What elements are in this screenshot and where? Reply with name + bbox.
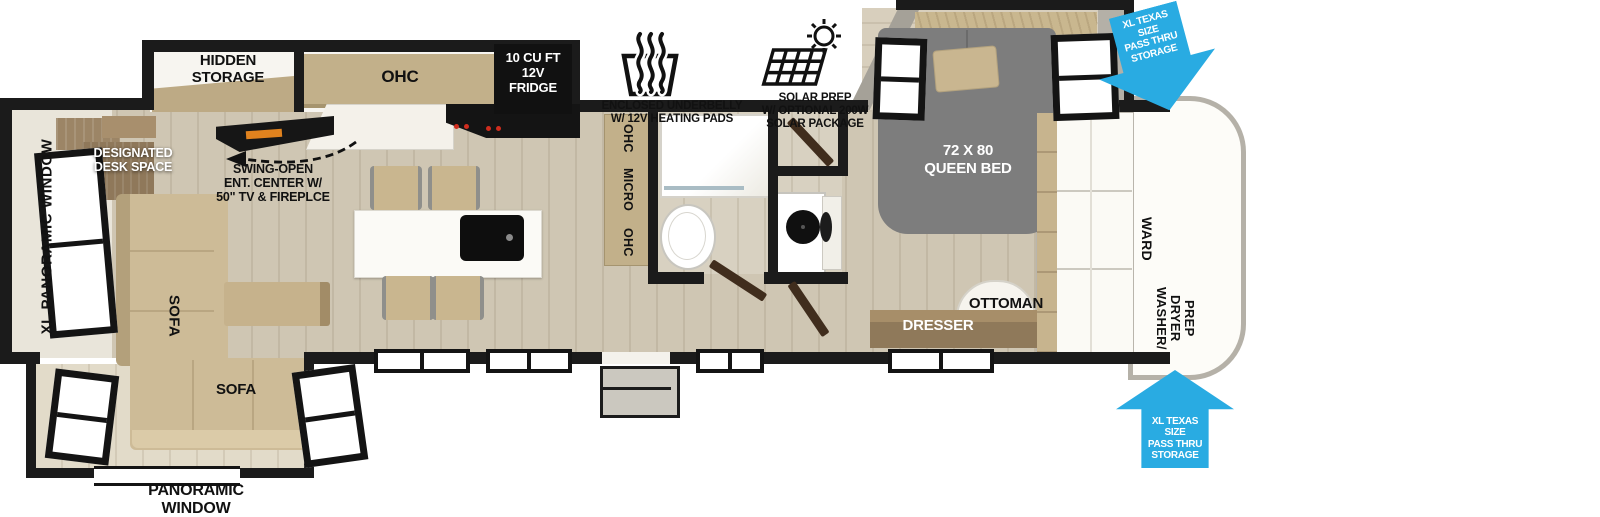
window — [374, 349, 470, 373]
washer-door-hub — [801, 225, 805, 229]
xl-panoramic-window-label: XL PANORAMIC WINDOW — [24, 116, 70, 356]
wall — [294, 46, 304, 112]
panoramic-window-label: PANORAMIC WINDOW — [118, 482, 274, 517]
washer-side-door — [820, 212, 832, 242]
slideout-side-window — [292, 364, 369, 468]
hidden-storage-label: HIDDEN STORAGE — [170, 52, 286, 86]
fridge-label: 10 CU FT 12V FRIDGE — [494, 50, 572, 95]
window-divider — [527, 353, 531, 369]
ohc-label: OHC — [304, 68, 496, 86]
pillow — [932, 45, 999, 92]
toilet-seat-line — [668, 212, 706, 260]
wall — [896, 0, 1134, 10]
ent-center-label: SWING-OPEN ENT. CENTER W/ 50" TV & FIREP… — [202, 162, 344, 204]
window — [888, 349, 994, 373]
entry-door-opening — [602, 352, 670, 364]
bar-stool — [432, 276, 484, 320]
window-divider — [939, 353, 943, 369]
micro-label: MICRO — [604, 158, 652, 222]
wall — [768, 110, 778, 280]
sofa-horizontal-label: SOFA — [196, 382, 276, 398]
wardrobe-divider — [1057, 190, 1132, 192]
burner-knob — [486, 126, 491, 131]
bar-stool — [370, 166, 422, 210]
queen-bed-label: 72 X 80 QUEEN BED — [898, 142, 1038, 178]
window-divider — [420, 353, 424, 369]
bar-stool — [428, 166, 480, 210]
heating-pads-icon — [608, 26, 692, 100]
kitchen-sink — [460, 215, 524, 261]
sofa-seam — [192, 360, 194, 430]
pass-thru-arrow-bottom: XL TEXAS SIZE PASS THRU STORAGE — [1116, 370, 1234, 468]
wall — [0, 98, 152, 110]
burner-knob — [496, 126, 501, 131]
pass-thru-bottom-label: XL TEXAS SIZE PASS THRU STORAGE — [1141, 409, 1208, 468]
shower-glass-door — [664, 186, 744, 190]
door-jamb — [670, 352, 678, 364]
floorplan-canvas: HIDDEN STORAGE OHC 10 CU FT 12V FRIDGE S… — [0, 0, 1600, 517]
wall — [0, 98, 12, 364]
dresser-label: DRESSER — [882, 318, 994, 334]
bar-stool — [382, 276, 434, 320]
window — [486, 349, 572, 373]
wardrobe-door-seam — [1090, 113, 1092, 353]
faucet-dot — [506, 234, 513, 241]
micro-ohc-bottom-label: OHC — [604, 222, 652, 262]
wall — [26, 358, 36, 478]
wall — [648, 272, 704, 284]
sofa-front-band — [132, 430, 310, 448]
sofa-vertical-label: SOFA — [152, 268, 196, 364]
window-divider — [728, 353, 732, 369]
burner-knob — [454, 124, 459, 129]
window — [696, 349, 764, 373]
wardrobe-shelves — [1037, 113, 1057, 353]
window-divider — [881, 76, 919, 82]
wardrobe-divider — [1057, 268, 1132, 270]
coffee-table — [224, 282, 330, 326]
slideout-side-window — [45, 368, 119, 465]
ottoman-label: OTTOMAN — [946, 296, 1066, 312]
solar-prep-label: SOLAR PREP W/ OPTIONAL 200W SOLAR PACKAG… — [726, 92, 904, 131]
desk-surface — [102, 116, 156, 138]
desk-label: DESIGNATED DESK SPACE — [84, 146, 182, 174]
window-divider — [57, 412, 107, 423]
door-jamb — [594, 352, 602, 364]
washer-dryer-prep-label: WASHER/ DRYER PREP — [1146, 264, 1204, 372]
entry-steps — [600, 366, 680, 418]
solar-panel-icon — [750, 16, 850, 96]
sofa-seam — [130, 250, 214, 252]
window-divider — [305, 411, 355, 423]
burner-knob — [464, 124, 469, 129]
entry-step-tread — [603, 387, 671, 390]
